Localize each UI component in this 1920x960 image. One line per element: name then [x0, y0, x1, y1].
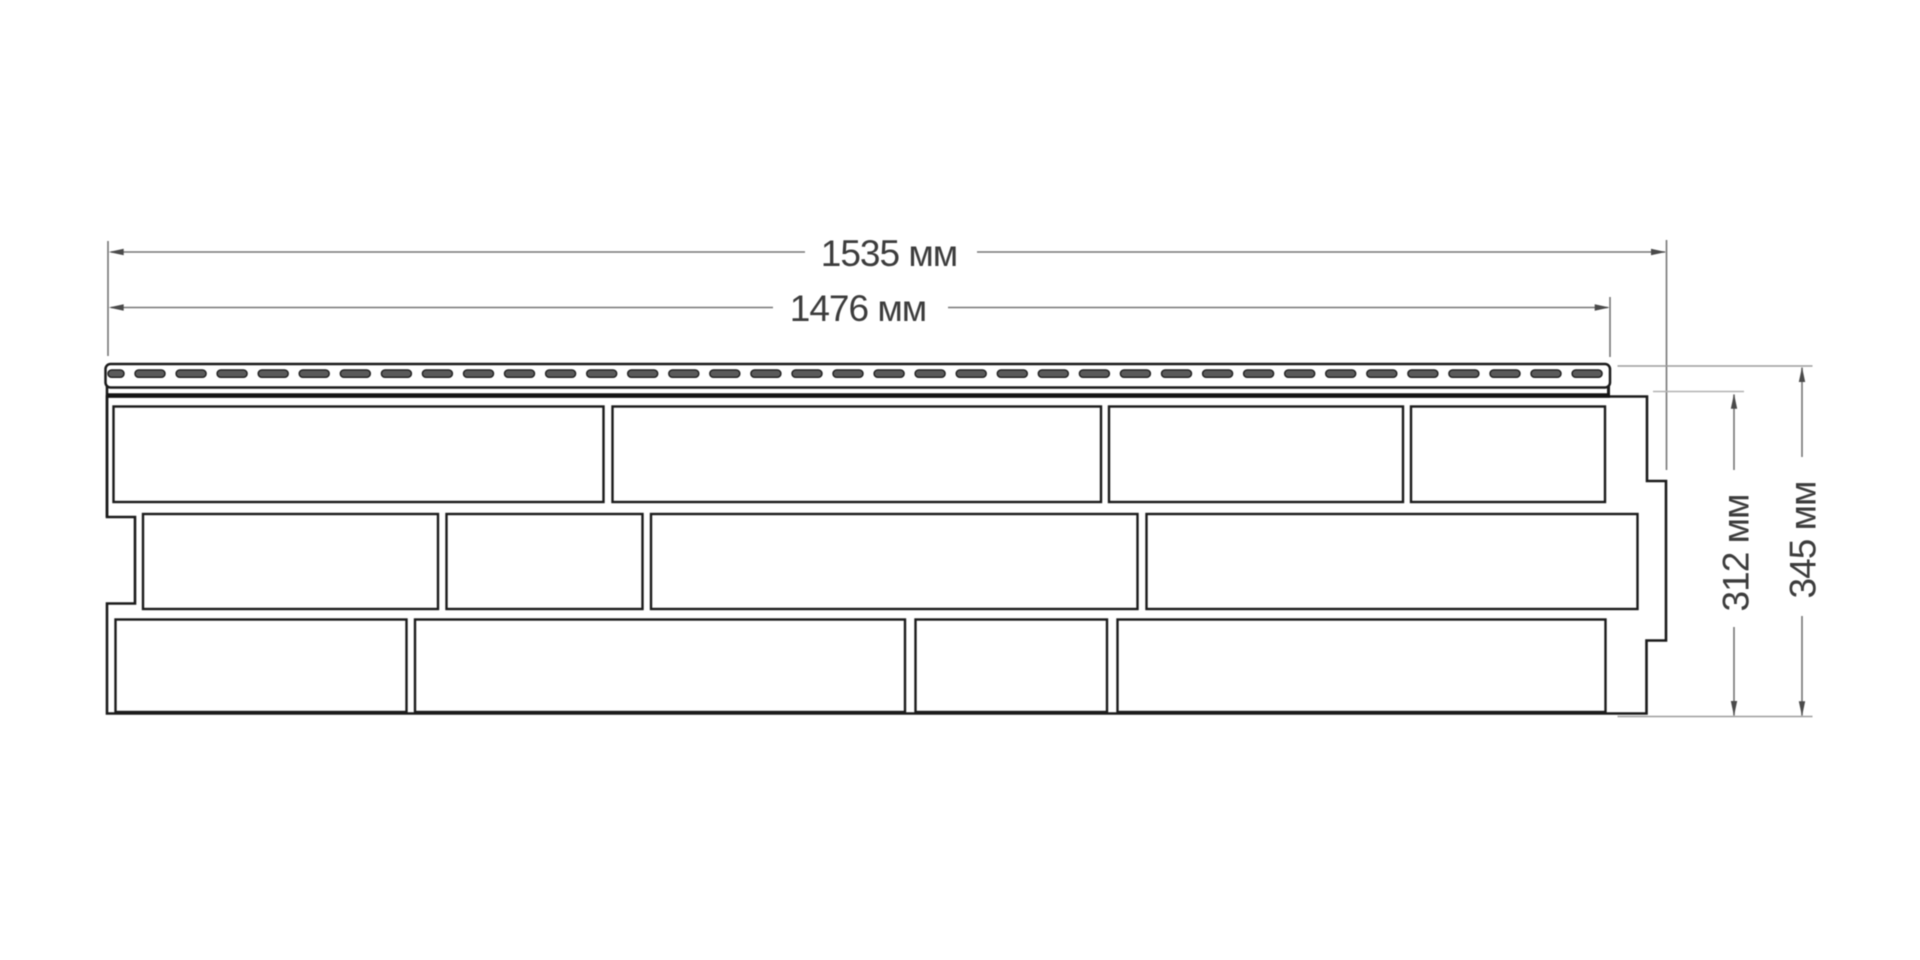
svg-text:1476 мм: 1476 мм — [790, 288, 926, 329]
svg-text:312 мм: 312 мм — [1716, 495, 1757, 612]
svg-text:345 мм: 345 мм — [1783, 482, 1824, 599]
svg-text:1535 мм: 1535 мм — [821, 233, 957, 274]
